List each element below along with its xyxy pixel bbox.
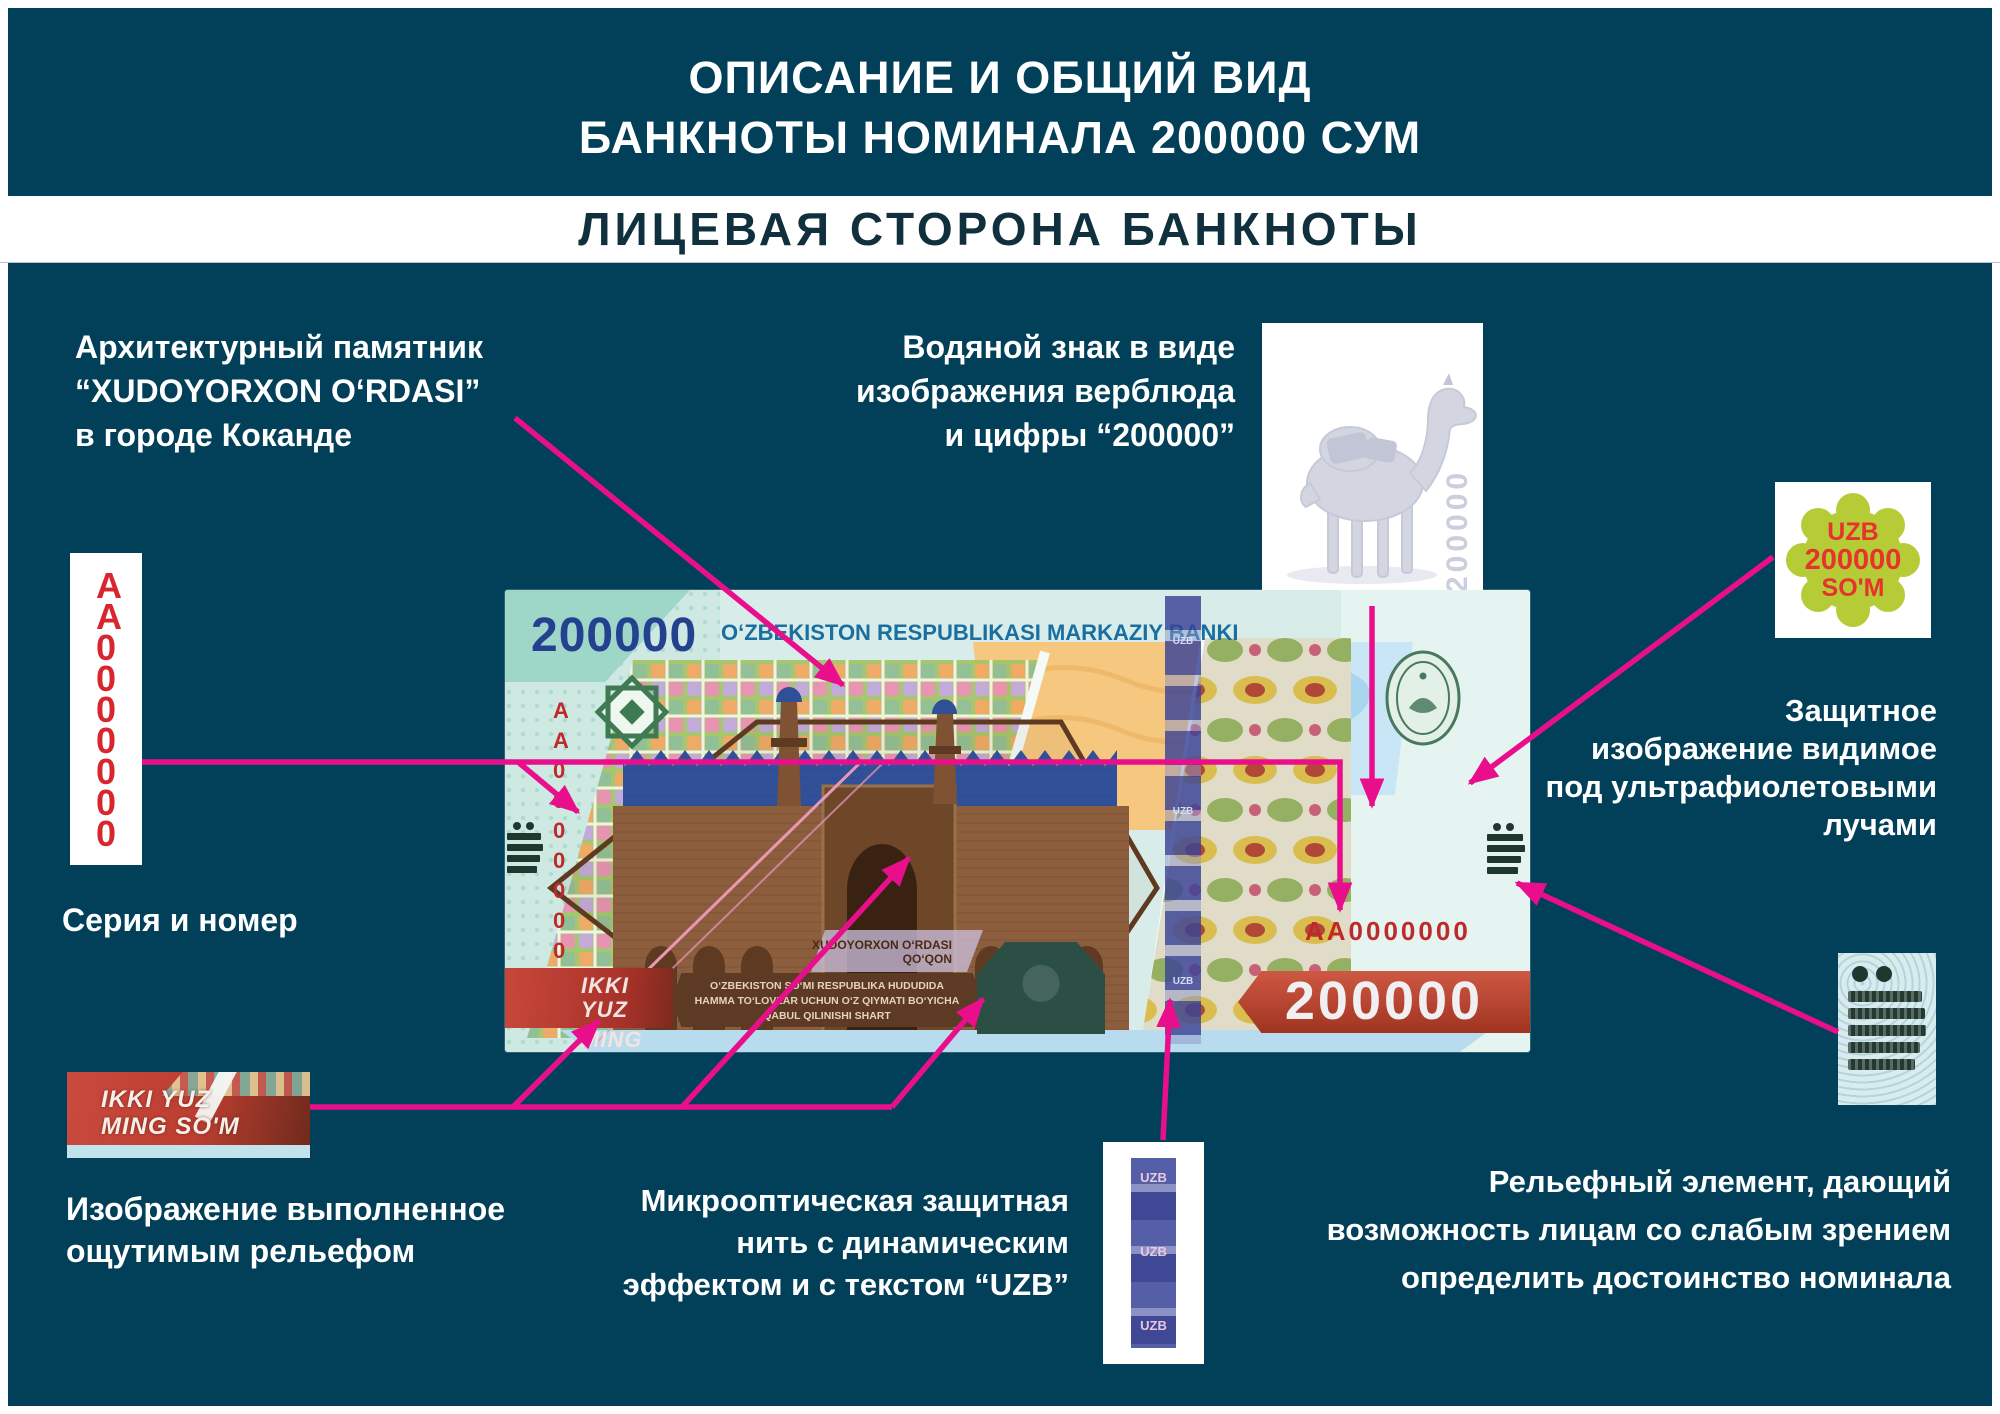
callout-tactile-image: Изображение выполненное ощутимым рельефо… (66, 1188, 505, 1272)
security-thread-sample: UZB UZB UZB (1103, 1142, 1204, 1364)
note-serial-horizontal: AA0000000 (1305, 916, 1471, 947)
note-security-thread: UZB UZB UZB (1165, 596, 1201, 1044)
callout-uv-line2: изображение видимое (1546, 730, 1937, 768)
tactile-sample-line2: MING SO'M (101, 1113, 240, 1140)
tactile-sample-image: IKKI YUZ MING SO'M (67, 1072, 310, 1158)
note-legal-line2: HAMMA TO‘LOVLAR UCHUN O‘Z QIYMATI BO‘YIC… (672, 994, 982, 1009)
uv-badge-line2: 200000 (1805, 545, 1902, 575)
banknote-front: 200000 O‘ZBEKISTON RESPUBLIKASI MARKAZIY… (505, 590, 1530, 1052)
callout-microoptic-line2: нить с динамическим (623, 1222, 1069, 1264)
callout-architecture: Архитектурный памятник “XUDOYORXON O‘RDA… (75, 325, 483, 457)
note-serial-vertical-text: AA0000000 (553, 696, 565, 966)
callout-uv-line1: Защитное (1546, 692, 1937, 730)
note-value-words-line2: MING SO'M (581, 1028, 673, 1052)
thread-text-2: UZB (1131, 1244, 1176, 1259)
thread-text-1: UZB (1131, 1170, 1176, 1185)
callout-uv: Защитное изображение видимое под ультраф… (1546, 692, 1937, 844)
note-legal-banner: O‘ZBEKISTON SO‘MI RESPUBLIKA HUDUDIDA HA… (672, 973, 982, 1027)
note-relief-bars-right (1487, 823, 1527, 878)
callout-watermark-line3: и цифры “200000” (856, 413, 1235, 457)
callout-relief-line1: Рельефный элемент, дающий (1327, 1158, 1951, 1206)
callout-tactile-line2: ощутимым рельефом (66, 1230, 505, 1272)
note-monument-caption: XUDOYORXON O‘RDASI QO‘QON (812, 938, 952, 966)
note-relief-bars-left (507, 822, 547, 877)
note-monument-line2: QO‘QON (812, 952, 952, 966)
page-title: ОПИСАНИЕ И ОБЩИЙ ВИД БАНКНОТЫ НОМИНАЛА 2… (0, 48, 2000, 168)
note-denomination-bottom: 200000 (1238, 971, 1530, 1033)
callout-architecture-line1: Архитектурный памятник (75, 325, 483, 369)
callout-microoptic-line3: эффектом и с текстом “UZB” (623, 1264, 1069, 1306)
watermark-sample: 200000 (1262, 323, 1483, 606)
poster: ОПИСАНИЕ И ОБЩИЙ ВИД БАНКНОТЫ НОМИНАЛА 2… (0, 0, 2000, 1414)
security-thread-strip: UZB UZB UZB (1131, 1158, 1176, 1348)
callout-watermark: Водяной знак в виде изображения верблюда… (856, 325, 1235, 457)
watermark-number: 200000 (1441, 393, 1475, 593)
subtitle-text: ЛИЦЕВАЯ СТОРОНА БАНКНОТЫ (0, 196, 2000, 262)
callout-architecture-line2: “XUDOYORXON O‘RDASI” (75, 369, 483, 413)
note-thread-text-2: UZB (1165, 806, 1201, 817)
page-title-line2: БАНКНОТЫ НОМИНАЛА 200000 СУМ (0, 108, 2000, 168)
callout-watermark-line1: Водяной знак в виде (856, 325, 1235, 369)
note-ornament-patch (977, 942, 1105, 1034)
note-thread-text-3: UZB (1165, 976, 1201, 987)
callout-watermark-line2: изображения верблюда (856, 369, 1235, 413)
uv-badge-line3: SO'M (1822, 575, 1885, 601)
callout-uv-line3: под ультрафиолетовыми (1546, 768, 1937, 806)
note-bank-name: O‘ZBEKISTON RESPUBLIKASI MARKAZIY BANKI (721, 620, 1238, 646)
callout-relief-line3: определить достоинство номинала (1327, 1254, 1951, 1302)
relief-dots (1852, 966, 1892, 982)
callout-architecture-line3: в городе Коканде (75, 413, 483, 457)
note-monument-line1: XUDOYORXON O‘RDASI (812, 938, 952, 952)
uv-badge-text: UZB 200000 SO'M (1775, 482, 1931, 638)
tactile-sample-strip (67, 1145, 310, 1158)
callout-serial-caption: Серия и номер (62, 898, 298, 942)
callout-uv-line4: лучами (1546, 806, 1937, 844)
note-value-words-banner: IKKI YUZ MING SO'M (505, 968, 673, 1028)
note-thread-text-1: UZB (1165, 636, 1201, 647)
uv-badge-sample: UZB 200000 SO'M (1775, 482, 1931, 638)
subtitle-band: ЛИЦЕВАЯ СТОРОНА БАНКНОТЫ (0, 196, 2000, 263)
serial-number-vertical-text: AA0000000 (96, 570, 116, 849)
note-denomination-top: 200000 (531, 608, 697, 663)
callout-relief-element: Рельефный элемент, дающий возможность ли… (1327, 1158, 1951, 1302)
tactile-sample-text: IKKI YUZ MING SO'M (101, 1086, 240, 1140)
callout-microoptic-line1: Микрооптическая защитная (623, 1180, 1069, 1222)
page-title-line1: ОПИСАНИЕ И ОБЩИЙ ВИД (0, 48, 2000, 108)
note-legal-line1: O‘ZBEKISTON SO‘MI RESPUBLIKA HUDUDIDA (672, 979, 982, 994)
thread-text-3: UZB (1131, 1318, 1176, 1333)
note-legal-line3: QABUL QILINISHI SHART (672, 1009, 982, 1024)
relief-bars (1848, 991, 1928, 1076)
callout-tactile-line1: Изображение выполненное (66, 1188, 505, 1230)
callout-relief-line2: возможность лицам со слабым зрением (1327, 1206, 1951, 1254)
note-serial-vertical: AA0000000 (553, 696, 565, 966)
uv-badge-line1: UZB (1827, 519, 1878, 545)
callout-microoptic: Микрооптическая защитная нить с динамиче… (623, 1180, 1069, 1306)
serial-number-sample: AA0000000 (70, 553, 142, 865)
relief-element-sample (1838, 953, 1936, 1105)
note-value-words-line1: IKKI YUZ (581, 974, 673, 1022)
tactile-sample-line1: IKKI YUZ (101, 1086, 240, 1113)
